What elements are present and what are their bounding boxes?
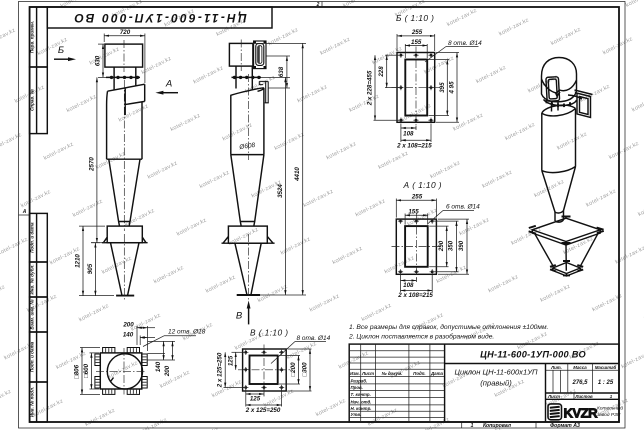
svg-text:Подп. и дата: Подп. и дата	[30, 222, 35, 253]
svg-text:Н. контр.: Н. контр.	[351, 406, 372, 411]
svg-text:□806: □806	[73, 364, 80, 379]
svg-text:Взам. инв. №: Взам. инв. №	[30, 299, 35, 330]
svg-text:□600: □600	[83, 363, 90, 378]
svg-text:Копировал: Копировал	[483, 423, 512, 429]
svg-text:Циклон ЦН-11-600х1УП: Циклон ЦН-11-600х1УП	[454, 368, 538, 377]
svg-text:Масштаб: Масштаб	[595, 365, 617, 370]
svg-text:4410: 4410	[294, 167, 301, 182]
svg-text:Листов: Листов	[574, 394, 593, 399]
svg-text:390: 390	[458, 240, 465, 251]
svg-text:Котельный: Котельный	[597, 405, 623, 412]
svg-text:2. Циклон поставляется в разоб: 2. Циклон поставляется в разобранном вид…	[348, 333, 494, 341]
svg-text:155: 155	[411, 39, 422, 46]
svg-text:ЦН-11-600-1УП-000 ВО: ЦН-11-600-1УП-000 ВО	[72, 11, 246, 25]
svg-text:Б ( 1:10 ): Б ( 1:10 )	[396, 13, 434, 23]
svg-text:255: 255	[411, 194, 423, 201]
svg-text:125: 125	[228, 355, 235, 366]
svg-text:Лист: Лист	[361, 371, 374, 376]
svg-text:А ( 1:10 ): А ( 1:10 )	[403, 180, 442, 190]
svg-text:6 отв. Ø14: 6 отв. Ø14	[446, 204, 480, 211]
svg-text:638: 638	[278, 66, 285, 77]
svg-text:Б: Б	[58, 45, 64, 56]
svg-text:Т. контр.: Т. контр.	[351, 392, 371, 397]
svg-text:905: 905	[87, 263, 94, 274]
svg-text:№ докум.: № докум.	[382, 371, 403, 376]
svg-text:Утв.: Утв.	[351, 412, 362, 417]
svg-text:2 х 108=215: 2 х 108=215	[396, 143, 432, 150]
svg-text:Подп.: Подп.	[413, 371, 425, 376]
svg-text:155: 155	[408, 208, 419, 215]
svg-text:200: 200	[164, 365, 171, 377]
svg-text:Дата: Дата	[430, 371, 444, 376]
svg-text:1 : 25: 1 : 25	[598, 380, 614, 386]
svg-text:Инв. № подл.: Инв. № подл.	[30, 387, 35, 418]
svg-text:(правый): (правый)	[480, 379, 512, 388]
svg-text:В: В	[236, 311, 243, 322]
svg-text:140: 140	[155, 361, 162, 372]
svg-text:А: А	[22, 209, 27, 215]
svg-text:Инв. № дубл.: Инв. № дубл.	[29, 264, 35, 294]
svg-text:2 х 228=455: 2 х 228=455	[367, 70, 374, 106]
svg-text:2 х 125=250: 2 х 125=250	[245, 407, 281, 414]
svg-text:108: 108	[403, 131, 414, 138]
svg-text:200: 200	[122, 322, 134, 329]
svg-text:Перв. примен.: Перв. примен.	[30, 21, 35, 53]
svg-text:1210: 1210	[75, 254, 82, 268]
svg-text:Нач. отд.: Нач. отд.	[351, 400, 372, 405]
svg-text:Пров.: Пров.	[351, 385, 363, 390]
svg-text:1. Все размеры для справок, до: 1. Все размеры для справок, допустимые о…	[349, 323, 549, 331]
svg-text:Масса: Масса	[573, 365, 587, 370]
svg-text:276,5: 276,5	[571, 380, 588, 386]
svg-text:2: 2	[316, 2, 320, 8]
svg-text:Справ. №: Справ. №	[30, 88, 35, 111]
svg-text:ЦН-11-600-1УП-000 ВО: ЦН-11-600-1УП-000 ВО	[480, 349, 586, 359]
svg-text:125: 125	[250, 395, 261, 402]
svg-text:630: 630	[95, 55, 102, 66]
svg-text:8 отв. Ø14: 8 отв. Ø14	[448, 40, 482, 47]
svg-text:Изм.: Изм.	[350, 371, 360, 376]
svg-text:720: 720	[120, 29, 131, 36]
svg-text:2570: 2570	[88, 157, 95, 172]
svg-text:Формат А3: Формат А3	[550, 423, 580, 429]
svg-text:2 х 108=215: 2 х 108=215	[397, 292, 433, 299]
svg-text:Лист: Лист	[547, 394, 560, 399]
svg-text:228: 228	[378, 66, 385, 78]
svg-text:4 95: 4 95	[449, 81, 456, 95]
svg-text:140: 140	[123, 331, 134, 338]
svg-text:Подп. и дата: Подп. и дата	[30, 341, 35, 372]
svg-text:108: 108	[403, 282, 414, 289]
svg-text:А: А	[165, 79, 172, 90]
svg-text:Разраб.: Разраб.	[351, 379, 368, 384]
svg-text:KVZR: KVZR	[564, 405, 599, 420]
svg-text:255: 255	[411, 29, 423, 36]
svg-text:350: 350	[448, 240, 455, 251]
svg-text:8 отв. Ø14: 8 отв. Ø14	[297, 335, 331, 342]
svg-text:290: 290	[438, 240, 445, 252]
svg-text:завод РЗП: завод РЗП	[596, 412, 621, 418]
svg-text:2 х 125=250: 2 х 125=250	[217, 352, 224, 388]
svg-text:В ( 1:10 ): В ( 1:10 )	[250, 328, 288, 338]
svg-text:Лит.: Лит.	[550, 365, 562, 370]
svg-text:3524: 3524	[277, 184, 284, 198]
svg-text:□200: □200	[290, 362, 297, 377]
svg-text:1: 1	[471, 423, 474, 429]
svg-text:12 отв. Ø18: 12 отв. Ø18	[168, 329, 206, 336]
svg-text:□300: □300	[302, 362, 309, 377]
svg-text:395: 395	[439, 82, 446, 93]
